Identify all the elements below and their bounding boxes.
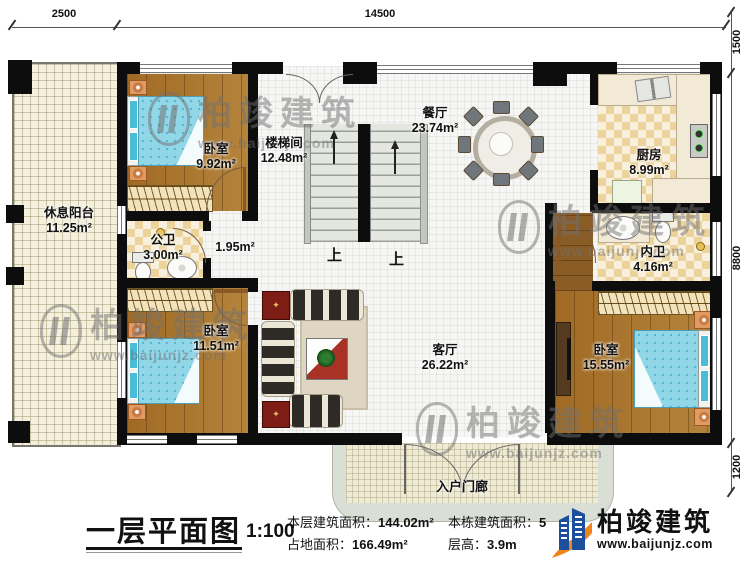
wall-column [533,62,567,86]
brand-website: www.baijunjz.com [597,537,713,551]
window [712,318,721,410]
dimension-line-top [12,27,726,28]
room-label-bedroom1: 卧室 9.92m² [176,142,256,172]
chair-icon [531,136,544,153]
room-name: 卧室 [176,324,256,339]
chair-icon [493,173,510,186]
bedroom1-door-leaf [243,167,246,211]
window [617,64,700,73]
stair-flight-left [310,124,360,242]
wall [545,281,555,433]
room-name: 卧室 [176,142,256,157]
room-label-stairwell: 楼梯间 12.48m² [252,136,316,166]
storey-height-row: 层高：3.9m [448,534,517,553]
stair-rail [420,124,428,244]
room-label-bedroom2: 卧室 11.51m² [176,324,256,354]
room-name: 公卫 [127,233,199,248]
room-area: 26.22m² [405,358,485,373]
land-area-label: 占地面积： [287,537,352,552]
window [127,435,167,444]
room-area: 8.99m² [609,163,689,178]
total-area-value: 5 [539,515,546,530]
room-area: 12.48m² [252,151,316,166]
wall [592,281,722,291]
wall [592,203,722,213]
stair-up-label: 上 [389,248,404,269]
closet-icon [127,288,213,312]
dimension-tick [8,20,17,31]
balcony-column [8,60,32,94]
room-name: 客厅 [405,343,485,358]
dimension-tick [722,20,731,31]
dimension-label-2500: 2500 [36,8,92,20]
wall [248,278,258,292]
room-area: 4.16m² [613,260,693,275]
wall [242,211,258,221]
sofa-chaise [289,394,343,428]
drawing-title: 一层平面图 [86,508,241,550]
side-cabinet-icon: ✦ [262,401,290,428]
room-name: 餐厅 [395,106,475,121]
dimension-label-1500: 1500 [731,17,743,67]
pillow-icon [129,100,138,129]
wall [545,203,557,213]
land-area-row: 占地面积：166.49m² [287,534,408,553]
room-area: 15.55m² [566,358,646,373]
nightstand-icon [129,80,147,95]
bath-accessory-icon [696,242,705,251]
floor-area-label: 本层建筑面积： [287,515,378,530]
room-area: 11.25m² [29,221,109,236]
stair-up-label: 上 [327,244,342,265]
room-area: 3.00m² [127,248,199,263]
room-label-bedroom3: 卧室 15.55m² [566,343,646,373]
room-label-inner-bath: 内卫 4.16m² [613,245,693,275]
pillow-icon [129,372,138,399]
brand-logo-icon [549,500,595,562]
plant-icon [317,349,335,367]
stair-center-wall [358,124,370,242]
dimension-label-14500: 14500 [348,8,412,20]
pillow-icon [129,132,138,161]
total-area-row: 本栋建筑面积：5 [448,512,546,531]
room-area: 23.74m² [395,121,475,136]
room-name: 内卫 [613,245,693,260]
room-label-dining: 餐厅 23.74m² [395,106,475,136]
room-name: 休息阳台 [29,206,109,221]
dimension-label-8800: 8800 [731,233,743,283]
chair-icon [458,136,471,153]
floor-area-value: 144.02m² [378,515,434,530]
entry-door-leaf-left [404,444,406,494]
room-name: 卧室 [566,343,646,358]
floorplan-canvas: ✦ ✦ 上 上 [0,0,750,567]
inner-toilet-bowl-icon [655,221,671,243]
room-name: 入户门廊 [412,479,512,495]
wall [117,278,250,288]
wall [117,211,209,221]
balcony-column [8,421,30,443]
title-underline [86,547,242,550]
window [712,94,721,176]
window [197,435,237,444]
room-label-hall: 1.95m² [205,240,265,255]
sofa-top [290,289,364,321]
balcony-column [6,205,24,223]
stair-up-arrow-stem [333,138,335,164]
room-label-public-bath: 公卫 3.00m² [127,233,199,263]
wall [203,221,211,231]
dimension-label-1200: 1200 [731,442,743,492]
room-label-kitchen: 厨房 8.99m² [609,148,689,178]
room-label-balcony: 休息阳台 11.25m² [29,206,109,236]
dining-table-center [489,132,513,156]
storey-height-value: 3.9m [487,537,517,552]
storey-height-label: 层高： [448,537,487,552]
balcony-floor [12,62,121,447]
floor-area-row: 本层建筑面积：144.02m² [287,512,434,531]
window [377,65,533,74]
entry-door-leaf-right [518,444,520,494]
pillow-icon [129,342,138,369]
side-cabinet-icon: ✦ [262,291,290,320]
pillow-icon [700,335,709,367]
wall [547,433,722,445]
room-area: 9.92m² [176,157,256,172]
stair-up-arrow-stem [394,148,396,174]
brand-name: 柏竣建筑 [597,502,713,539]
balcony-column [6,267,24,285]
land-area-value: 166.49m² [352,537,408,552]
stove-icon [690,124,708,158]
room-label-porch: 入户门廊 [412,479,512,495]
title-underline-2 [86,552,242,553]
room-area: 11.51m² [176,339,256,354]
window [712,222,721,276]
chair-icon [493,101,510,114]
window [140,64,232,73]
nightstand-icon [128,322,146,338]
total-area-label: 本栋建筑面积： [448,515,539,530]
wall [590,74,598,105]
kitchen-sink-icon [635,76,672,103]
nightstand-icon [129,166,147,181]
inner-bath-sink-icon [606,216,640,240]
closet-icon [127,185,213,212]
window [117,342,126,398]
room-name: 楼梯间 [252,136,316,151]
window [117,206,126,234]
room-label-living: 客厅 26.22m² [405,343,485,373]
pillow-icon [700,370,709,402]
dimension-tick [113,20,122,31]
sofa-left [261,321,295,397]
room-name: 厨房 [609,148,689,163]
nightstand-icon [128,404,146,420]
room-area: 1.95m² [205,240,265,255]
